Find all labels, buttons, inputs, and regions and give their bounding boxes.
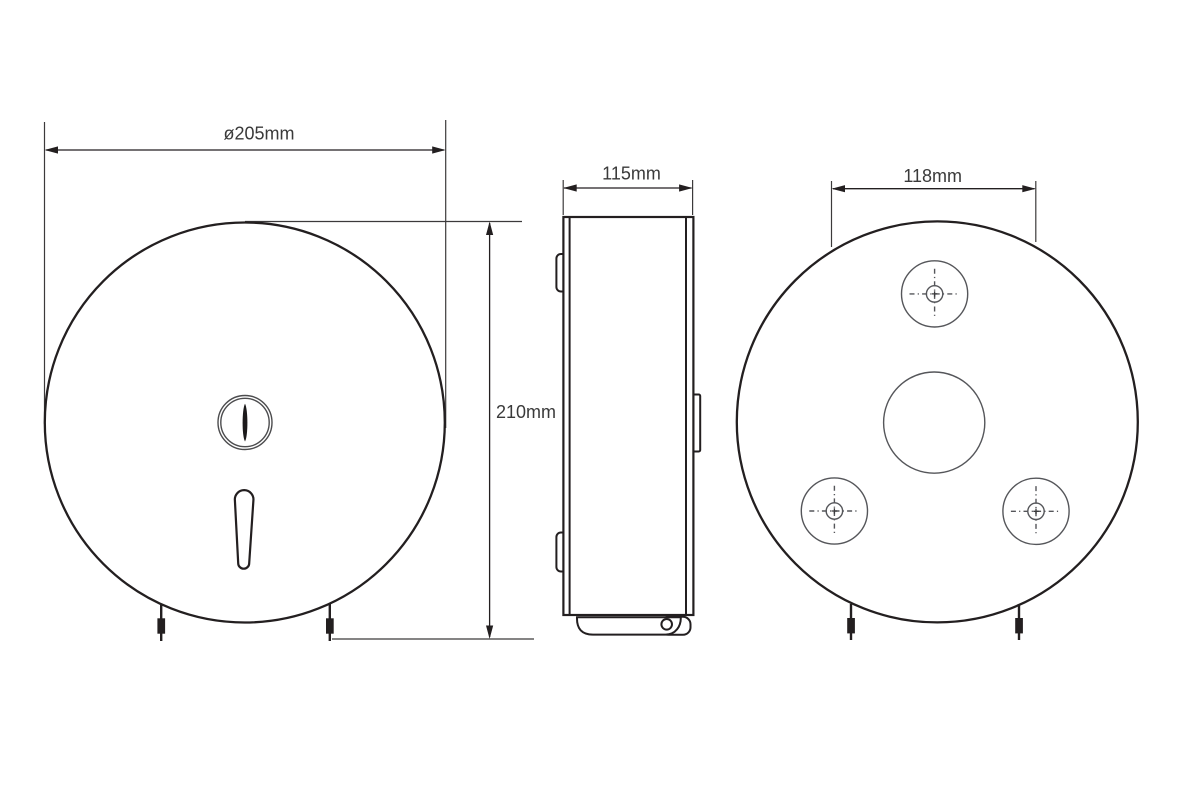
- svg-text:ø205mm: ø205mm: [223, 124, 294, 144]
- svg-text:210mm: 210mm: [496, 402, 556, 422]
- svg-text:118mm: 118mm: [903, 166, 962, 186]
- svg-text:115mm: 115mm: [602, 164, 661, 184]
